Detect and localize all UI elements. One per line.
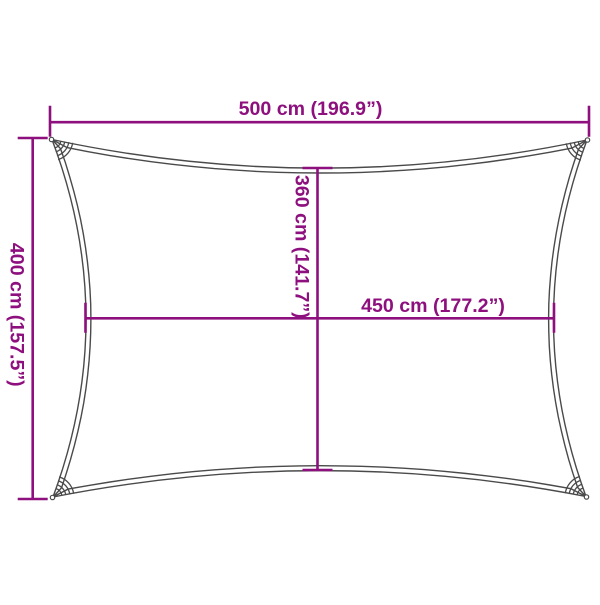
svg-text:400 cm (157.5”): 400 cm (157.5”) — [6, 243, 28, 387]
svg-text:500 cm (196.9”): 500 cm (196.9”) — [239, 98, 383, 120]
svg-text:360 cm (141.7”): 360 cm (141.7”) — [291, 175, 313, 319]
svg-text:450 cm (177.2”): 450 cm (177.2”) — [361, 295, 505, 317]
